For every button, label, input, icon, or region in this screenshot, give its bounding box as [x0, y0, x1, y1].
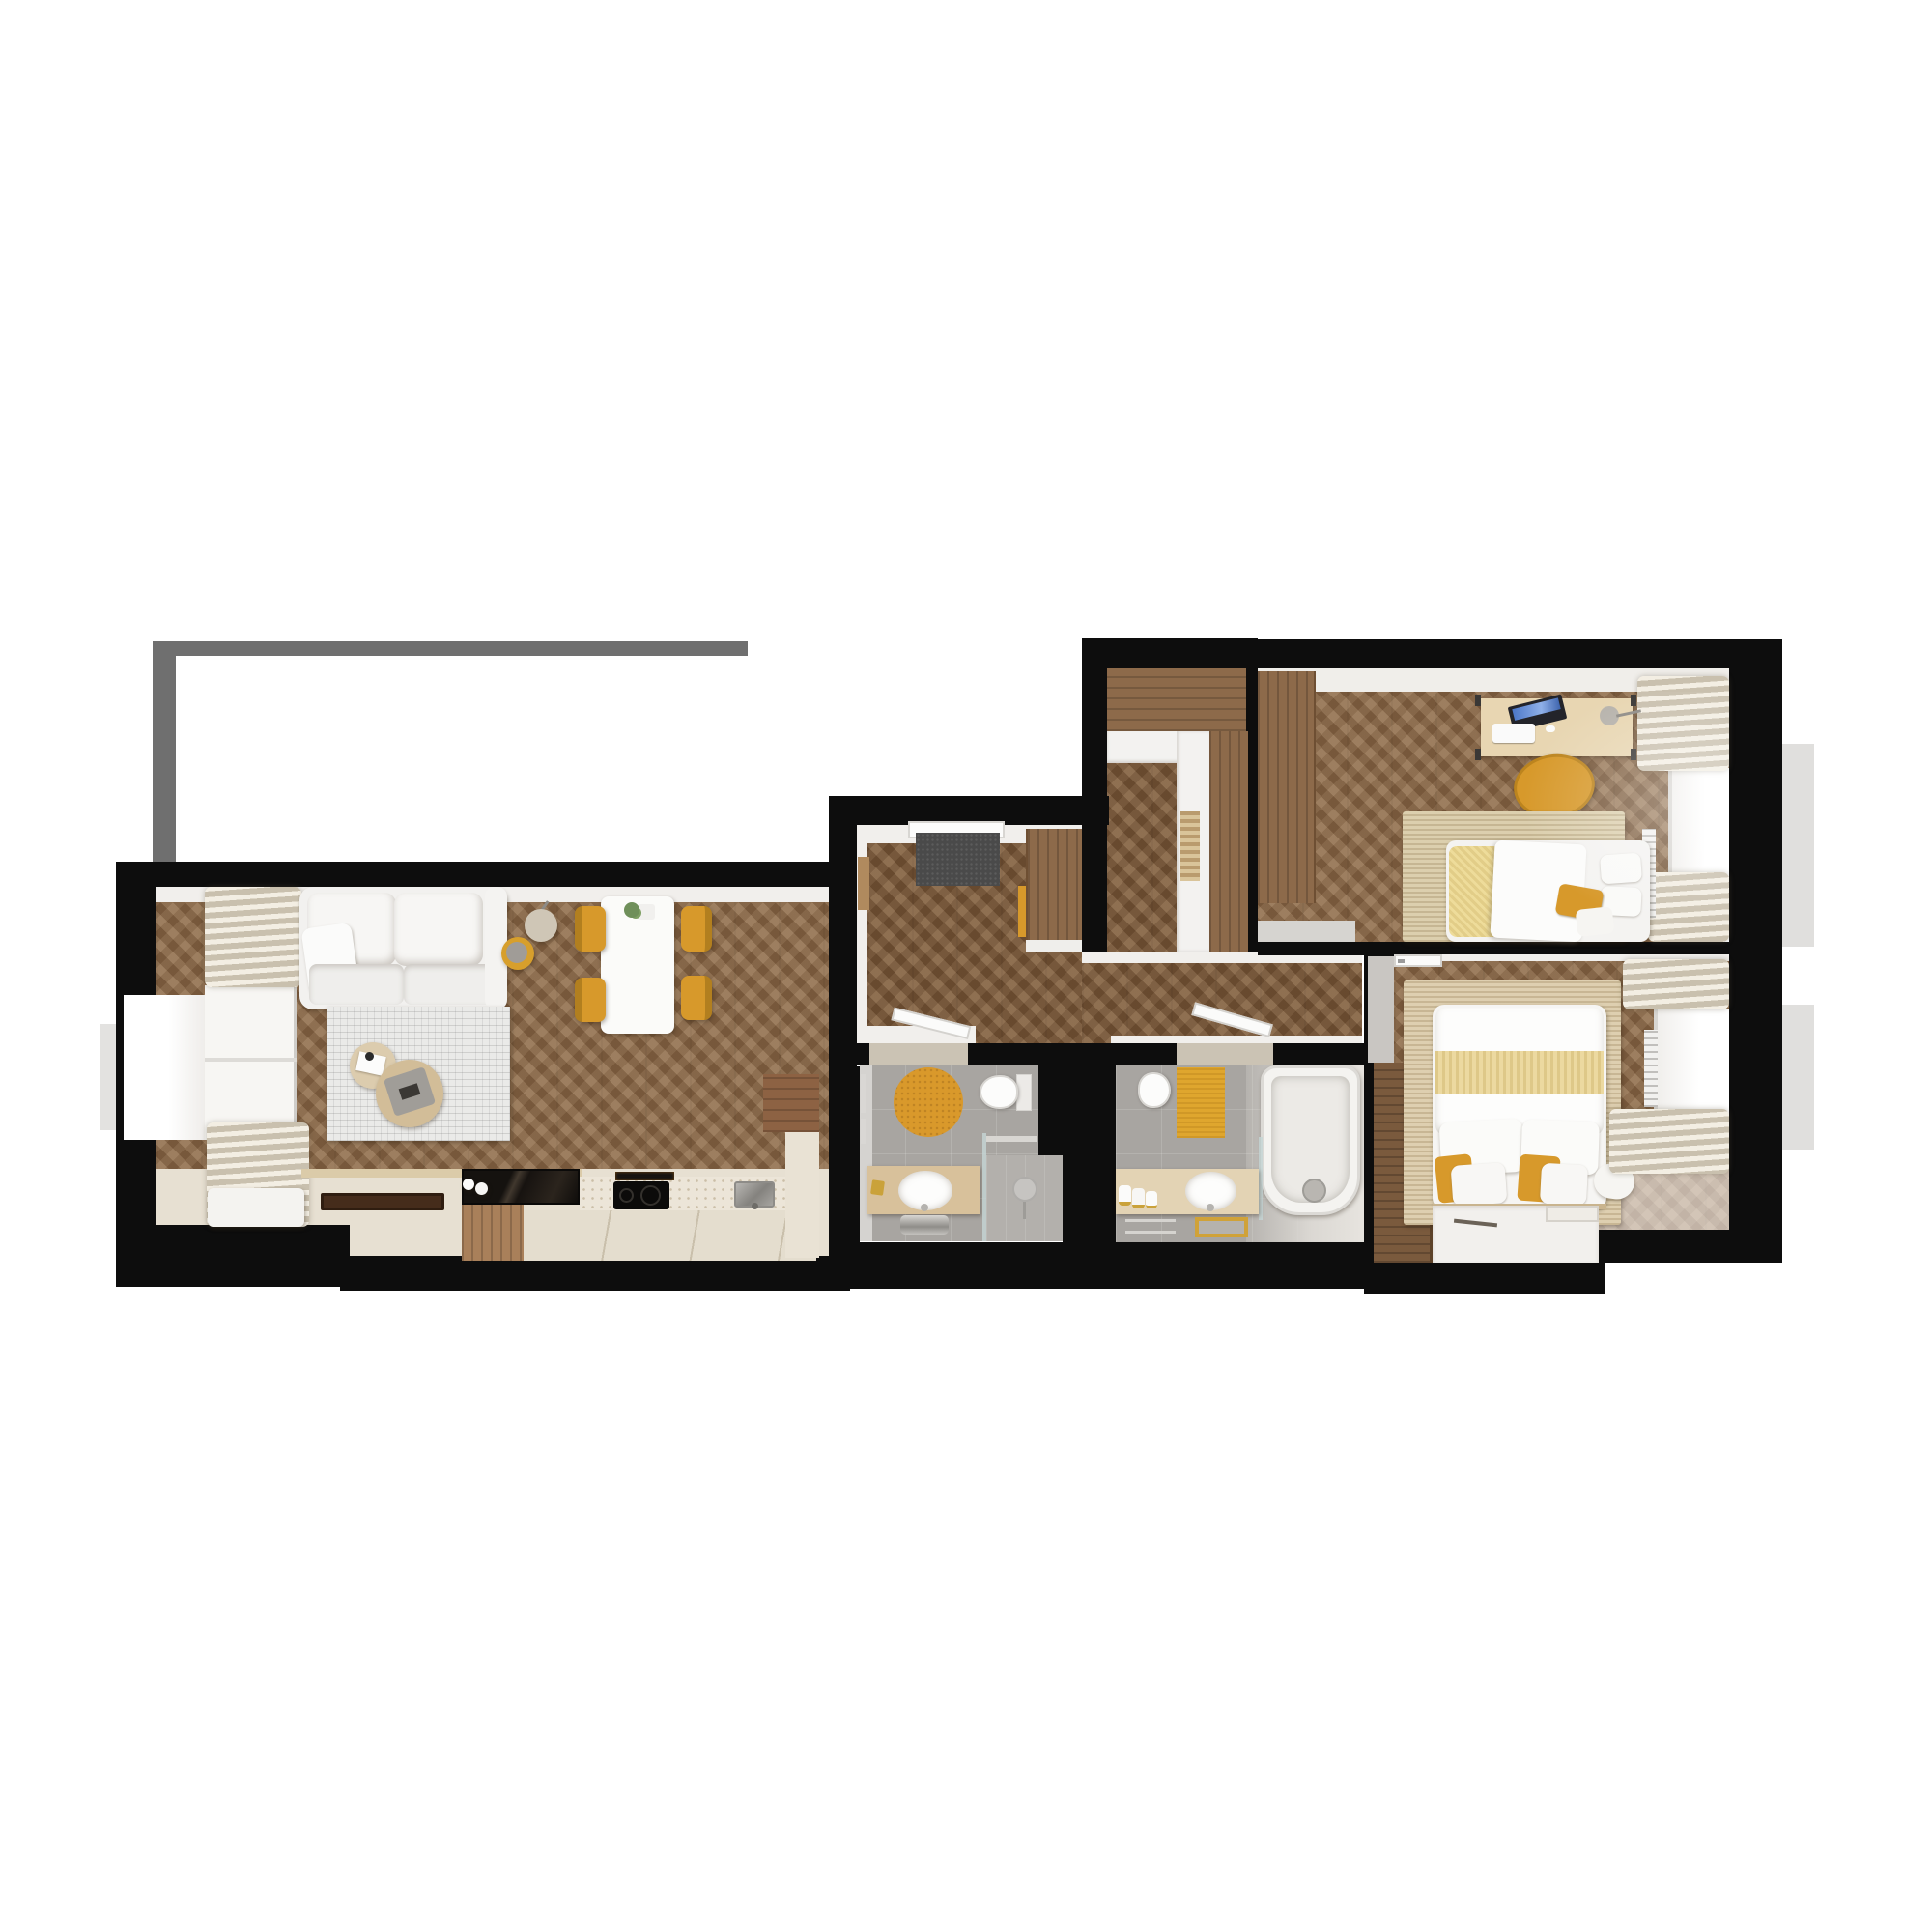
wall-living-entry-divider — [829, 796, 857, 1066]
bathroom2-yellow-mat — [1177, 1067, 1225, 1138]
induction-hob — [613, 1181, 669, 1209]
breakfast-tray — [321, 1193, 444, 1210]
curtain-living-upper — [205, 887, 301, 987]
hob-burner-2 — [640, 1185, 661, 1206]
entry-doormat — [916, 833, 1000, 886]
island-cabinet — [462, 1205, 524, 1261]
wall-bedroom2-bottom-step — [1591, 1230, 1782, 1263]
wall-bedroom1-top — [1246, 639, 1782, 668]
window-mullion-left — [205, 1058, 297, 1062]
coffee-cup — [365, 1052, 374, 1061]
bathroom1-mirror-stand — [1023, 1202, 1026, 1219]
outer-sill-bedroom1 — [1782, 744, 1814, 947]
bathroom2-door-threshold — [1177, 1043, 1273, 1065]
dining-chair-top-left — [575, 906, 606, 952]
closet-floor — [1107, 763, 1177, 952]
wall-living-bottom — [340, 1256, 850, 1291]
wall-bedroom2-bottom — [1364, 1263, 1605, 1294]
bathroom1-door-threshold — [869, 1043, 968, 1065]
side-stool-top — [506, 942, 527, 963]
bathroom1-gold-tap — [870, 1179, 885, 1196]
tray-on-table — [384, 1066, 436, 1117]
closet-wood-column — [1209, 731, 1248, 952]
bathroom2-shower-head — [1302, 1179, 1326, 1203]
closet-wardrobe-band — [1107, 668, 1246, 731]
entry-mustard-accent — [1018, 886, 1026, 937]
window-glow-left — [124, 995, 205, 1140]
bathroom1-chrome-siphon — [900, 1215, 949, 1235]
bathroom1-towel-rail-1 — [861, 1074, 866, 1113]
bathroom1-round-rug — [894, 1067, 963, 1137]
toilet2-bowl — [1138, 1072, 1171, 1108]
floor-plan-stage — [0, 0, 1932, 1932]
wall-bedroom2-right — [1729, 953, 1782, 1230]
closet-slatted-shelf — [1180, 811, 1200, 881]
kitchen-counter-front — [524, 1210, 816, 1261]
balcony-railing-horizontal — [153, 641, 748, 656]
dining-table — [601, 896, 674, 1034]
bedroom2-bed — [1433, 1005, 1606, 1209]
bathroom1-glass-screen — [982, 1133, 986, 1241]
corridor-floor — [1082, 962, 1362, 1043]
bathroom2-gold-mirror — [1195, 1217, 1248, 1237]
bed2-yellow-throw-band — [1435, 1051, 1604, 1094]
outer-sill-bedroom2 — [1782, 1005, 1814, 1150]
wall-bathroom-divider-upper — [1038, 1065, 1116, 1155]
door-handle — [1398, 959, 1405, 963]
coffee-table-large — [376, 1060, 443, 1127]
bathroom2-faucet — [1207, 1204, 1214, 1211]
towel-roll-2 — [1132, 1188, 1145, 1208]
entry-wardrobe-plinth — [1026, 940, 1082, 952]
closet-bottom-face — [1082, 952, 1258, 963]
bathroom1-towel-rail-2 — [861, 1119, 866, 1144]
bed2-small-pillow-left — [1451, 1162, 1508, 1207]
plant-pot — [638, 904, 655, 920]
desk-leg-2 — [1475, 749, 1481, 760]
wall-living-bottom-left-step — [116, 1225, 350, 1287]
balcony-railing-vertical — [153, 641, 176, 862]
wall-bedroom1-right — [1729, 639, 1782, 954]
counter-return — [785, 1132, 819, 1258]
towel-roll-1 — [1119, 1185, 1131, 1206]
salt-jar — [463, 1179, 474, 1190]
bathroom1-round-mirror — [1012, 1177, 1037, 1202]
tall-kitchen-cabinet — [763, 1074, 819, 1132]
wall-bathrooms-bottom — [829, 1242, 1370, 1289]
bathroom1-faucet — [921, 1204, 928, 1211]
towel-roll-3 — [1146, 1191, 1157, 1208]
corridor-top-face — [1258, 955, 1362, 963]
dining-chair-bottom-left — [575, 978, 606, 1022]
window-bench — [208, 1188, 304, 1227]
desk-leg-1 — [1475, 695, 1481, 706]
wall-closet-left — [1082, 638, 1107, 952]
wall-bedroom-divider — [1248, 942, 1782, 955]
bedroom2-radiator — [1644, 1030, 1658, 1107]
sofa-seat-cushion-1 — [309, 964, 404, 1005]
outer-sill-left — [100, 1024, 116, 1130]
bed2-small-pillow-right — [1540, 1163, 1588, 1206]
sink-faucet — [752, 1203, 758, 1209]
bedroom2-door-frame — [1368, 956, 1394, 1063]
bathroom2-towel-rack — [1125, 1219, 1176, 1234]
dining-chair-bottom-right — [681, 976, 712, 1020]
camera-object — [399, 1083, 421, 1100]
bedroom1-light-overlay — [1507, 692, 1729, 942]
wall-bathroom-divider-lower — [1063, 1155, 1116, 1244]
wall-living-top — [116, 862, 850, 887]
curtain-bedroom2-upper — [1623, 959, 1729, 1009]
sofa — [299, 887, 507, 1009]
vanity-tablet — [1546, 1206, 1599, 1222]
sofa-back-cushion-2 — [394, 893, 483, 966]
entry-wardrobe — [1026, 829, 1082, 940]
bathroom1-glass-towel-bar — [986, 1136, 1037, 1142]
bedroom1-wardrobe — [1258, 671, 1316, 903]
entry-slim-console — [858, 857, 869, 910]
bathroom2-glass-screen — [1259, 1137, 1263, 1220]
dining-chair-top-right — [681, 906, 712, 952]
bedroom2-open-door — [1394, 954, 1442, 967]
corridor-bottom-face-east — [1111, 1036, 1362, 1043]
hob-burner-1 — [619, 1188, 634, 1203]
window-frame-left — [205, 985, 297, 1140]
curtain-bedroom2-mid — [1609, 1109, 1729, 1174]
kitchen-sink — [734, 1181, 775, 1207]
floor-lamp-shade — [525, 909, 557, 942]
toilet1-tank — [1016, 1074, 1032, 1111]
bedroom1-sw-shadow-patch — [1258, 921, 1355, 942]
wall-closet-top — [1082, 638, 1258, 668]
toilet1-bowl — [980, 1075, 1018, 1109]
potted-plant — [624, 902, 639, 918]
extractor-vent — [615, 1172, 674, 1180]
pepper-jar — [475, 1182, 488, 1195]
